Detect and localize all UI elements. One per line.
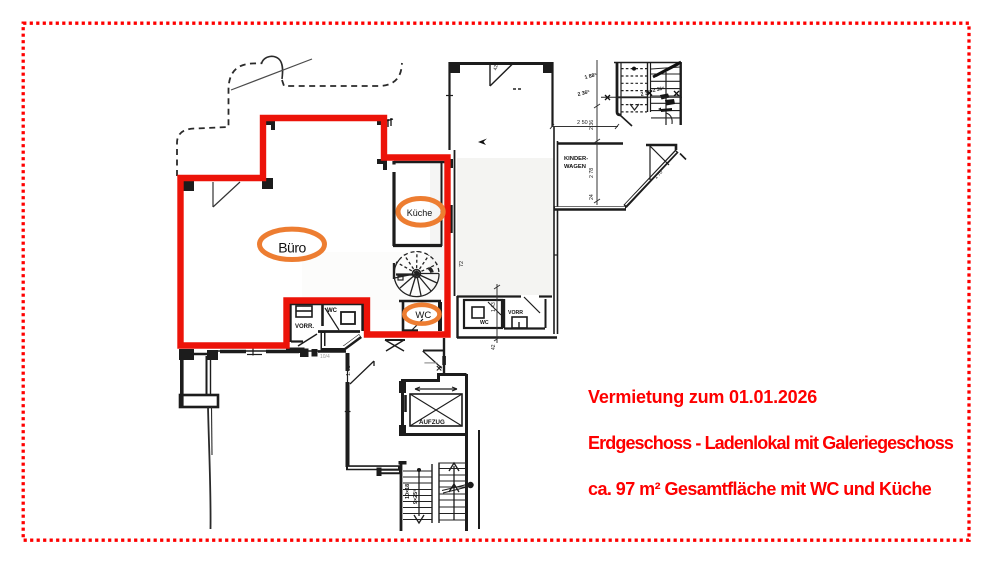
svg-text:1.43: 1.43 bbox=[346, 365, 352, 376]
svg-text:24: 24 bbox=[589, 194, 595, 200]
svg-text:72: 72 bbox=[459, 261, 465, 267]
svg-text:1 70: 1 70 bbox=[653, 169, 664, 180]
svg-text:Küche: Küche bbox=[407, 208, 433, 218]
svg-text:WC: WC bbox=[327, 308, 338, 314]
svg-text:KINDER-: KINDER- bbox=[564, 156, 588, 162]
svg-text:WC: WC bbox=[480, 320, 489, 326]
svg-text:AUFZUG: AUFZUG bbox=[419, 419, 445, 426]
svg-text:2 36⁵: 2 36⁵ bbox=[652, 85, 666, 94]
svg-text:9×25⁵: 9×25⁵ bbox=[413, 489, 419, 504]
svg-text:Büro: Büro bbox=[278, 239, 306, 255]
svg-text:10/4: 10/4 bbox=[320, 354, 330, 360]
svg-text:2 78: 2 78 bbox=[589, 168, 595, 178]
svg-text:WAGEN: WAGEN bbox=[564, 164, 586, 170]
svg-text:2 36⁵: 2 36⁵ bbox=[577, 89, 591, 98]
svg-text:1 43: 1 43 bbox=[491, 302, 497, 312]
svg-text:WC: WC bbox=[415, 310, 431, 321]
svg-text:2 50: 2 50 bbox=[577, 120, 588, 126]
svg-text:1 88⁵: 1 88⁵ bbox=[584, 72, 598, 81]
svg-text:VORR: VORR bbox=[508, 310, 523, 316]
svg-text:42: 42 bbox=[493, 64, 500, 71]
svg-text:VORR.: VORR. bbox=[295, 324, 314, 330]
svg-text:42: 42 bbox=[491, 344, 497, 350]
svg-text:10×18: 10×18 bbox=[405, 484, 411, 499]
svg-text:2 36: 2 36 bbox=[589, 120, 595, 130]
